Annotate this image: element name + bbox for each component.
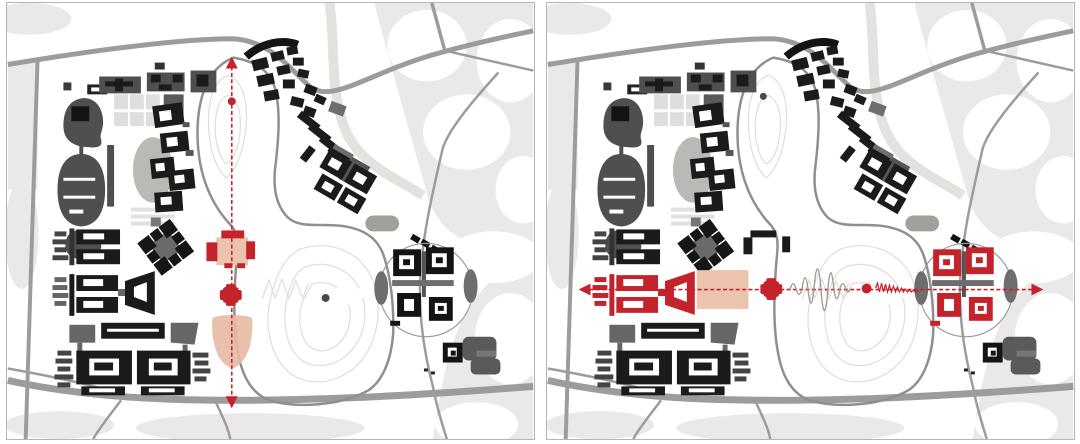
- panel-horizontal-axis: [546, 2, 1075, 440]
- axis-arrow-left: [579, 284, 591, 296]
- axis-node: [220, 284, 242, 306]
- axis-dot: [862, 284, 872, 294]
- site-plan-horizontal-axis: [547, 3, 1074, 439]
- axis-node: [760, 278, 782, 300]
- axis-dot: [228, 97, 236, 105]
- site-plan-vertical-axis: [7, 3, 534, 439]
- axis-analysis-figure: [0, 0, 1080, 444]
- hill-peak-dot: [322, 294, 330, 302]
- panel-vertical-axis: [6, 2, 535, 440]
- hill-peak-dot: [760, 93, 767, 100]
